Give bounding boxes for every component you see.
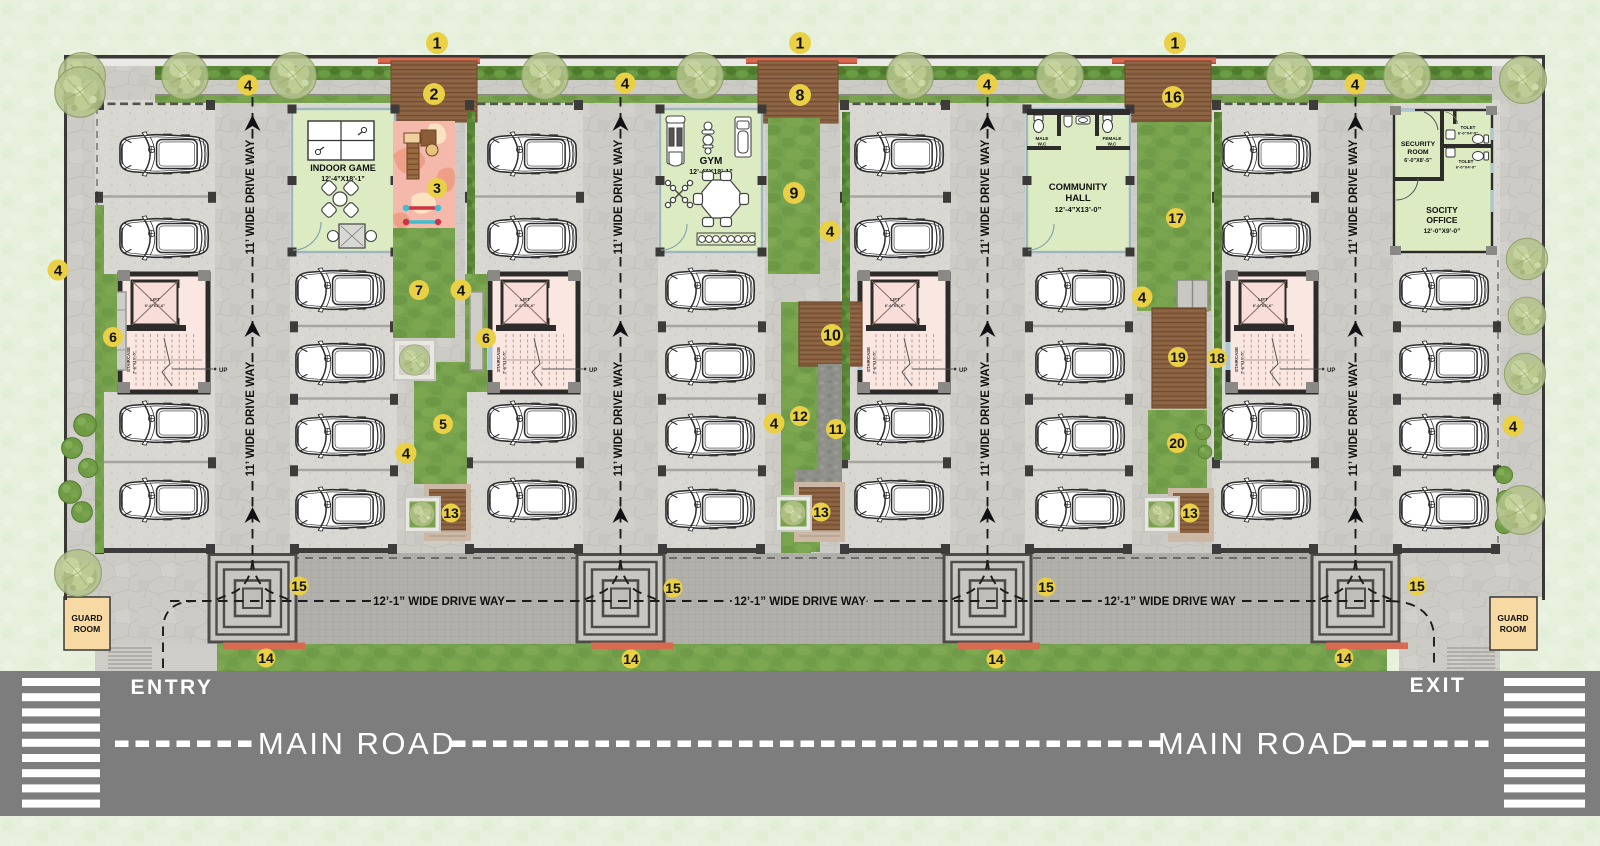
svg-text:14: 14	[988, 651, 1004, 667]
svg-text:15: 15	[291, 578, 307, 594]
svg-text:UP: UP	[1327, 368, 1335, 374]
svg-text:4: 4	[1351, 76, 1360, 93]
svg-text:13: 13	[443, 505, 459, 521]
svg-text:20: 20	[1169, 435, 1185, 451]
svg-text:6’-6”X5’-6”: 6’-6”X5’-6”	[515, 303, 535, 308]
svg-text:SOCITY: SOCITY	[1426, 205, 1458, 215]
svg-text:3: 3	[433, 180, 441, 196]
svg-text:6: 6	[109, 329, 117, 345]
svg-text:6’-6”X5’-6”: 6’-6”X5’-6”	[1253, 303, 1273, 308]
svg-text:TOLET: TOLET	[1459, 159, 1474, 164]
svg-text:MAIN ROAD: MAIN ROAD	[1158, 726, 1356, 761]
svg-text:6’-0”X8’-5”: 6’-0”X8’-5”	[1404, 158, 1432, 164]
svg-text:11: 11	[829, 421, 844, 437]
svg-text:EXIT: EXIT	[1410, 674, 1467, 697]
svg-text:17: 17	[1168, 210, 1184, 226]
svg-text:ROOM: ROOM	[1500, 624, 1526, 634]
svg-text:UP: UP	[219, 368, 227, 374]
svg-text:12’-1” WIDE DRIVE WAY: 12’-1” WIDE DRIVE WAY	[373, 596, 505, 608]
svg-text:7’-6”X10’-5”: 7’-6”X10’-5”	[132, 351, 137, 374]
svg-text:11’ WIDE DRIVE WAY: 11’ WIDE DRIVE WAY	[1348, 139, 1360, 254]
svg-text:14: 14	[1336, 650, 1352, 666]
svg-text:11’ WIDE DRIVE WAY: 11’ WIDE DRIVE WAY	[245, 361, 257, 476]
svg-text:MALE: MALE	[1035, 136, 1048, 141]
svg-text:TOLET: TOLET	[1461, 125, 1476, 130]
svg-text:GYM: GYM	[700, 156, 723, 167]
svg-text:11’ WIDE DRIVE WAY: 11’ WIDE DRIVE WAY	[245, 139, 257, 254]
svg-text:16: 16	[1164, 90, 1182, 107]
svg-text:4: 4	[244, 77, 253, 94]
svg-text:12’-0”X9’-0”: 12’-0”X9’-0”	[1424, 228, 1461, 235]
svg-text:W.C: W.C	[1038, 142, 1047, 147]
svg-text:4: 4	[770, 415, 779, 432]
svg-text:GUARD: GUARD	[1497, 613, 1528, 623]
svg-text:8: 8	[796, 88, 805, 105]
svg-text:11’ WIDE DRIVE WAY: 11’ WIDE DRIVE WAY	[1348, 361, 1360, 476]
svg-text:7: 7	[415, 282, 423, 298]
svg-text:11’ WIDE DRIVE WAY: 11’ WIDE DRIVE WAY	[613, 139, 625, 254]
svg-text:12’-1” WIDE DRIVE WAY: 12’-1” WIDE DRIVE WAY	[734, 596, 866, 608]
svg-text:11’ WIDE DRIVE WAY: 11’ WIDE DRIVE WAY	[980, 361, 992, 476]
svg-text:ENTRY: ENTRY	[131, 676, 214, 699]
svg-text:STAIRCASE: STAIRCASE	[866, 347, 871, 372]
svg-text:15: 15	[1409, 578, 1425, 594]
svg-text:6: 6	[482, 330, 490, 346]
svg-text:UP: UP	[959, 368, 967, 374]
svg-text:6’-6”X5’-6”: 6’-6”X5’-6”	[885, 303, 905, 308]
svg-text:LIFT: LIFT	[1258, 297, 1268, 302]
svg-text:LIFT: LIFT	[520, 297, 530, 302]
svg-text:STAIRCASE: STAIRCASE	[496, 347, 501, 372]
svg-text:11’ WIDE DRIVE WAY: 11’ WIDE DRIVE WAY	[613, 361, 625, 476]
svg-text:W.C: W.C	[1108, 142, 1117, 147]
svg-text:HALL: HALL	[1065, 193, 1091, 204]
svg-text:1: 1	[1171, 36, 1180, 53]
svg-text:4: 4	[983, 76, 992, 93]
svg-text:14: 14	[623, 651, 639, 667]
svg-text:6’-0”X4’-0”: 6’-0”X4’-0”	[1458, 131, 1478, 136]
svg-text:4: 4	[402, 445, 411, 462]
svg-text:4: 4	[826, 223, 835, 240]
svg-text:6’-0”X4’-0”: 6’-0”X4’-0”	[1456, 165, 1476, 170]
svg-text:12: 12	[792, 408, 808, 424]
svg-text:6’-6”X5’-6”: 6’-6”X5’-6”	[145, 303, 165, 308]
svg-text:ROOM: ROOM	[74, 624, 100, 634]
svg-text:12’-4”X13’-0”: 12’-4”X13’-0”	[1055, 205, 1102, 214]
svg-text:5: 5	[439, 416, 447, 432]
svg-text:ROOM: ROOM	[1407, 149, 1428, 156]
svg-text:4: 4	[457, 282, 466, 299]
svg-text:18: 18	[1209, 350, 1225, 366]
svg-text:13: 13	[1182, 505, 1198, 521]
svg-text:15: 15	[1038, 579, 1054, 595]
svg-text:12’-1” WIDE DRIVE WAY: 12’-1” WIDE DRIVE WAY	[1104, 596, 1236, 608]
svg-text:11’ WIDE DRIVE WAY: 11’ WIDE DRIVE WAY	[980, 139, 992, 254]
svg-text:LIFT: LIFT	[150, 297, 160, 302]
svg-text:4: 4	[1509, 418, 1518, 435]
svg-text:GUARD: GUARD	[71, 613, 102, 623]
svg-text:STAIRCASE: STAIRCASE	[1234, 347, 1239, 372]
svg-text:14: 14	[258, 650, 274, 666]
svg-text:INDOOR GAME: INDOOR GAME	[310, 163, 376, 173]
svg-text:13: 13	[813, 504, 829, 520]
svg-text:FEMALE: FEMALE	[1103, 136, 1122, 141]
svg-text:LIFT: LIFT	[890, 297, 900, 302]
svg-text:10: 10	[823, 328, 841, 345]
svg-text:7’-6”X10’-5”: 7’-6”X10’-5”	[1240, 351, 1245, 374]
svg-text:SECURITY: SECURITY	[1401, 141, 1436, 148]
svg-text:MAIN ROAD: MAIN ROAD	[258, 726, 456, 761]
svg-text:4: 4	[54, 262, 63, 279]
svg-text:4: 4	[621, 75, 630, 92]
svg-text:9: 9	[790, 186, 799, 203]
svg-text:UP: UP	[589, 368, 597, 374]
svg-text:15: 15	[665, 580, 681, 596]
svg-text:7’-6”X10’-5”: 7’-6”X10’-5”	[502, 351, 507, 374]
svg-text:OFFICE: OFFICE	[1426, 215, 1457, 225]
svg-text:1: 1	[433, 36, 442, 53]
svg-text:19: 19	[1170, 349, 1186, 365]
svg-text:4: 4	[1138, 289, 1147, 306]
svg-text:2: 2	[430, 87, 439, 104]
svg-text:7’-6”X10’-5”: 7’-6”X10’-5”	[872, 351, 877, 374]
svg-text:COMMUNITY: COMMUNITY	[1049, 182, 1108, 193]
svg-text:1: 1	[796, 36, 805, 53]
